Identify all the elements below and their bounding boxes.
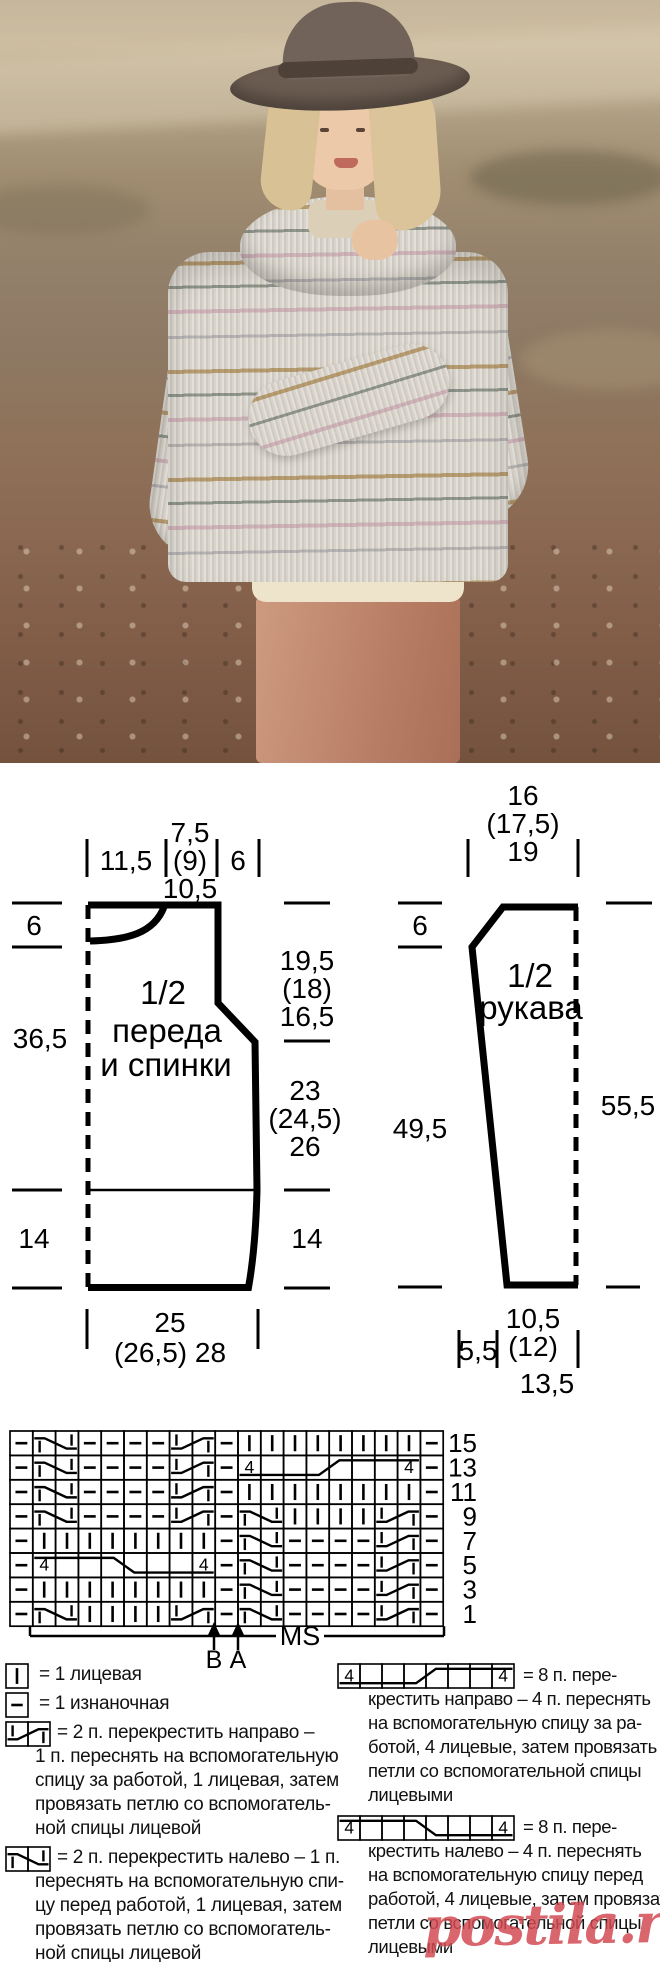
legend-symbol — [5, 1721, 51, 1753]
body-piece-title-1: 1/2 — [140, 974, 186, 1011]
chart-row: 3 — [10, 1575, 477, 1605]
legend-symbol: 44 — [337, 1663, 515, 1695]
dim-body-armhole-3: 16,5 — [280, 1001, 335, 1032]
dim-body-top-right: 6 — [230, 845, 246, 876]
dim-sleeve-top-2: (17,5) — [486, 808, 559, 839]
right-eye — [356, 128, 365, 132]
legend-item-rc2: = 2 п. перекрестить направо –1 п. пересн… — [5, 1721, 305, 1841]
knitting-chart: 154413119744531MSBA — [0, 1428, 660, 1692]
dim-body-armhole-2: (18) — [282, 973, 332, 1004]
dim-sleeve-top-3: 19 — [507, 836, 538, 867]
dim-body-neck-depth: 6 — [26, 910, 42, 941]
mouth — [334, 158, 358, 168]
dim-body-side-1: 23 — [289, 1075, 320, 1106]
svg-text:4: 4 — [498, 1665, 508, 1685]
chart-row: 15 — [10, 1428, 477, 1458]
dim-body-bottom-1: 25 — [154, 1307, 185, 1338]
dim-sleeve-cuff-2: (12) — [508, 1331, 558, 1362]
dim-sleeve-cuff-3: 13,5 — [520, 1368, 575, 1399]
dim-sleeve-cap: 6 — [412, 910, 428, 941]
dim-body-rib-right: 14 — [291, 1223, 322, 1254]
hand — [352, 220, 398, 260]
svg-text:4: 4 — [199, 1555, 209, 1575]
stitch-symbol-rc8: 44 — [337, 1663, 515, 1689]
svg-text:MS: MS — [280, 1621, 321, 1651]
legend-symbol: 44 — [337, 1815, 515, 1847]
legend-symbol — [5, 1846, 51, 1878]
chart-row: 4413 — [10, 1453, 477, 1483]
dim-sleeve-top-1: 16 — [507, 780, 538, 811]
shrub — [470, 150, 660, 205]
legend-text-line: спицу за работой, 1 лицевая, затем — [5, 1769, 305, 1793]
knitting-pattern-page: 7,5 (9) 10,5 11,5 6 6 36,5 14 19,5 (18) … — [0, 0, 660, 1962]
legend-symbol — [5, 1692, 29, 1724]
dim-body-side-3: 26 — [289, 1131, 320, 1162]
dim-sleeve-seam: 49,5 — [393, 1113, 448, 1144]
body-piece-title-2: переда — [112, 1012, 222, 1049]
svg-text:4: 4 — [344, 1665, 354, 1685]
legend-text-line: цу перед работой, 1 лицевая, затем — [5, 1894, 305, 1918]
model-photo — [0, 0, 660, 763]
dim-sleeve-length: 55,5 — [601, 1090, 656, 1121]
dim-body-shoulder: 11,5 — [100, 845, 152, 876]
stitch-symbol-k1 — [5, 1663, 29, 1689]
legend-text-line: ной спицы лицевой — [5, 1817, 305, 1841]
dim-body-neck-2: (9) — [173, 845, 207, 876]
svg-text:4: 4 — [344, 1817, 354, 1837]
stitch-symbol-rc2 — [5, 1721, 51, 1747]
dim-body-neck-3: 10,5 — [163, 873, 218, 904]
chart-row: 7 — [10, 1526, 477, 1556]
stitch-symbol-lc2 — [5, 1846, 51, 1872]
stitch-symbol-p1 — [5, 1692, 29, 1718]
svg-text:4: 4 — [404, 1457, 414, 1477]
svg-text:1: 1 — [463, 1599, 477, 1629]
left-eye — [320, 128, 329, 132]
dim-body-bottom-2: (26,5) 28 — [114, 1337, 226, 1368]
stitch-symbol-lc8: 44 — [337, 1815, 515, 1841]
legend-text-line: на вспомогательную спицу за ра- — [337, 1711, 660, 1735]
body-piece-outline — [88, 905, 257, 1288]
skirt — [256, 596, 460, 763]
chart-row: 11 — [10, 1477, 477, 1507]
legend-text-line: на вспомогательную спицу перед — [337, 1863, 660, 1887]
legend-text-line: ботой, 4 лицевые, затем провязать — [337, 1735, 660, 1759]
dim-body-armhole-1: 19,5 — [280, 945, 335, 976]
chart-row: 9 — [10, 1501, 477, 1531]
dim-sleeve-offset: 5,5 — [459, 1335, 498, 1366]
legend-item-rc8: 44= 8 п. пере-крестить направо – 4 п. пе… — [337, 1663, 660, 1807]
svg-text:4: 4 — [498, 1817, 508, 1837]
watermark: postila.ru — [422, 1890, 660, 1959]
legend-text-line: лицевыми — [337, 1783, 660, 1807]
legend-item-lc2: = 2 п. перекрестить налево – 1 п.пересня… — [5, 1846, 305, 1962]
chart-row: 1 — [10, 1599, 477, 1629]
dim-body-length: 36,5 — [13, 1023, 68, 1054]
dim-body-neck-1: 7,5 — [171, 817, 210, 848]
legend-text-line: ной спицы лицевой — [5, 1942, 305, 1962]
chart-legend-left-column: = 1 лицевая= 1 изнаночная= 2 п. перекрес… — [5, 1663, 305, 1962]
dim-body-rib-left: 14 — [18, 1223, 49, 1254]
legend-item-k1: = 1 лицевая — [5, 1663, 305, 1687]
dim-body-side-2: (24,5) — [268, 1103, 341, 1134]
legend-text-line: провязать петлю со вспомогатель- — [5, 1793, 305, 1817]
body-piece-title-3: и спинки — [100, 1046, 232, 1083]
dim-sleeve-cuff-1: 10,5 — [506, 1303, 561, 1334]
sleeve-piece-title-2: рукава — [479, 989, 583, 1026]
legend-text-line: = 1 изнаночная — [5, 1692, 305, 1716]
legend-text-line: провязать петлю со вспомогатель- — [5, 1918, 305, 1942]
svg-text:4: 4 — [245, 1457, 255, 1477]
legend-text-line: петли со вспомогательной спицы — [337, 1759, 660, 1783]
schematics-diagram: 7,5 (9) 10,5 11,5 6 6 36,5 14 19,5 (18) … — [0, 763, 660, 1428]
chart-row: 445 — [10, 1550, 477, 1580]
legend-text-line: = 1 лицевая — [5, 1663, 305, 1687]
legend-item-p1: = 1 изнаночная — [5, 1692, 305, 1716]
svg-text:4: 4 — [39, 1555, 49, 1575]
legend-symbol — [5, 1663, 29, 1695]
